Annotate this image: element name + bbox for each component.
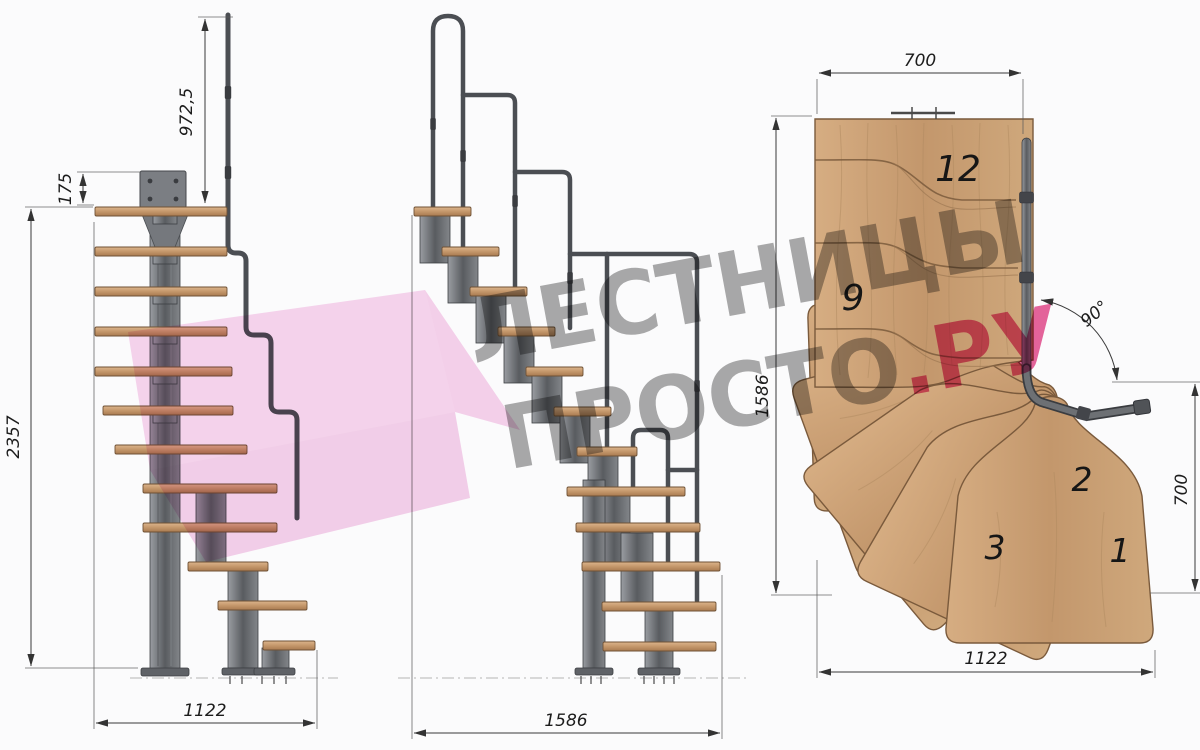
step xyxy=(603,642,716,651)
step xyxy=(602,602,716,611)
plan-view: 12 9 3 2 1 90° 700 xyxy=(753,51,1200,678)
dim-label-plan-top-width: 700 xyxy=(904,51,936,71)
dim-label-front-footprint: 1586 xyxy=(544,711,587,731)
step xyxy=(567,487,685,496)
step xyxy=(470,287,527,296)
step xyxy=(526,367,583,376)
support-column xyxy=(228,562,258,668)
base-plate xyxy=(638,668,680,675)
step xyxy=(95,247,227,256)
step xyxy=(498,327,555,336)
base-plate xyxy=(254,668,295,675)
step-label-3: 3 xyxy=(985,528,1006,567)
handrail-plan xyxy=(1020,138,1151,422)
dim-label-handrail-height: 972,5 xyxy=(177,88,197,137)
support-column xyxy=(262,648,289,668)
handrail-front xyxy=(430,16,700,601)
step xyxy=(414,207,471,216)
top-mount-plate xyxy=(140,171,186,208)
step xyxy=(576,523,700,532)
step-label-12: 12 xyxy=(935,149,981,190)
step xyxy=(582,562,720,571)
step-label-1: 1 xyxy=(1110,531,1131,570)
dim-label-top-offset: 175 xyxy=(56,173,76,205)
support-column xyxy=(645,611,673,668)
dim-total-height: 2357 xyxy=(4,207,138,668)
dim-turn-angle: 90° xyxy=(1041,297,1117,380)
watermark-arrow xyxy=(128,290,520,562)
step xyxy=(554,407,611,416)
rail-sleeve xyxy=(225,86,231,99)
wall-mount-bracket xyxy=(891,107,955,119)
base-plate xyxy=(575,668,613,675)
step xyxy=(263,641,315,650)
base-plate xyxy=(141,668,189,676)
step xyxy=(95,287,227,296)
anchor-bolts xyxy=(230,676,286,684)
step xyxy=(218,601,307,610)
technical-drawing: 972,5 175 2357 1122 xyxy=(0,0,1200,750)
dim-label-side-footprint: 1122 xyxy=(183,701,226,721)
step xyxy=(188,562,268,571)
rail-sleeve xyxy=(225,166,231,179)
dim-label-plan-bottom-width: 1122 xyxy=(964,649,1007,669)
staircase-drawing-canvas: 972,5 175 2357 1122 xyxy=(0,0,1200,750)
step xyxy=(95,207,227,216)
step-label-2: 2 xyxy=(1072,460,1093,499)
plan-platform xyxy=(815,107,1033,387)
dim-label-plan-right-width: 700 xyxy=(1172,474,1192,506)
step xyxy=(577,447,637,456)
dim-label-turn-angle: 90° xyxy=(1077,297,1113,332)
step-label-9: 9 xyxy=(842,278,865,319)
dim-label-plan-depth: 1586 xyxy=(753,374,773,417)
support-column xyxy=(583,480,605,668)
dim-top-offset: 175 xyxy=(56,172,140,205)
step xyxy=(442,247,499,256)
dim-label-total-height: 2357 xyxy=(4,415,24,458)
